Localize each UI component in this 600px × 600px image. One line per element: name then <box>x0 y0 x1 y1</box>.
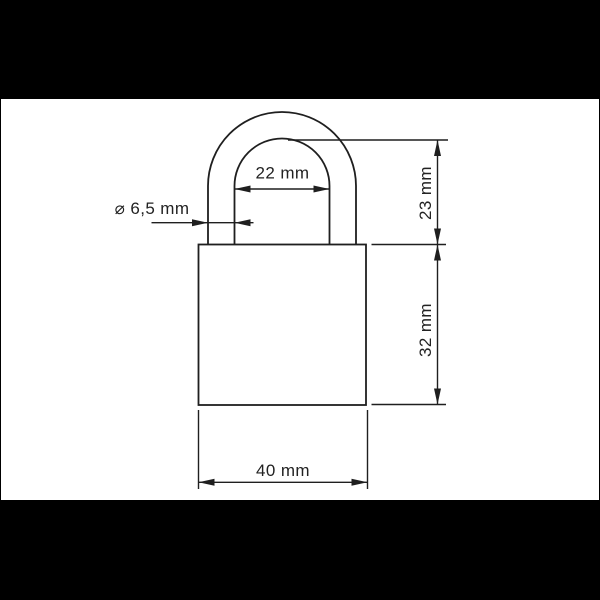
dimension-body-width: 40 mm <box>199 410 368 489</box>
arrow-left-icon <box>235 219 251 226</box>
dimension-shackle-inner-width: 22 mm <box>235 164 330 193</box>
arrow-down-icon <box>434 389 441 405</box>
arrow-left-icon <box>199 479 215 486</box>
screenshot-root: { "page": { "background_color": "#000000… <box>0 0 600 600</box>
arrow-right-icon <box>192 219 208 226</box>
arrow-left-icon <box>235 186 251 193</box>
dim-label-22mm: 22 mm <box>256 164 310 183</box>
dimension-shackle-diameter: ⌀ 6,5 mm <box>115 199 254 226</box>
padlock-dimension-drawing: 22 mm ⌀ 6,5 mm 23 mm 32 mm 40 mm <box>0 0 600 600</box>
arrow-down-icon <box>434 229 441 245</box>
dim-label-diameter: ⌀ 6,5 mm <box>115 199 190 218</box>
dim-label-32mm: 32 mm <box>416 303 435 357</box>
arrow-right-icon <box>314 186 330 193</box>
dim-label-23mm: 23 mm <box>416 166 435 220</box>
dim-label-40mm: 40 mm <box>256 461 310 480</box>
padlock-body <box>199 245 367 406</box>
arrow-up-icon <box>434 245 441 261</box>
arrow-up-icon <box>434 140 441 156</box>
arrow-right-icon <box>352 479 368 486</box>
